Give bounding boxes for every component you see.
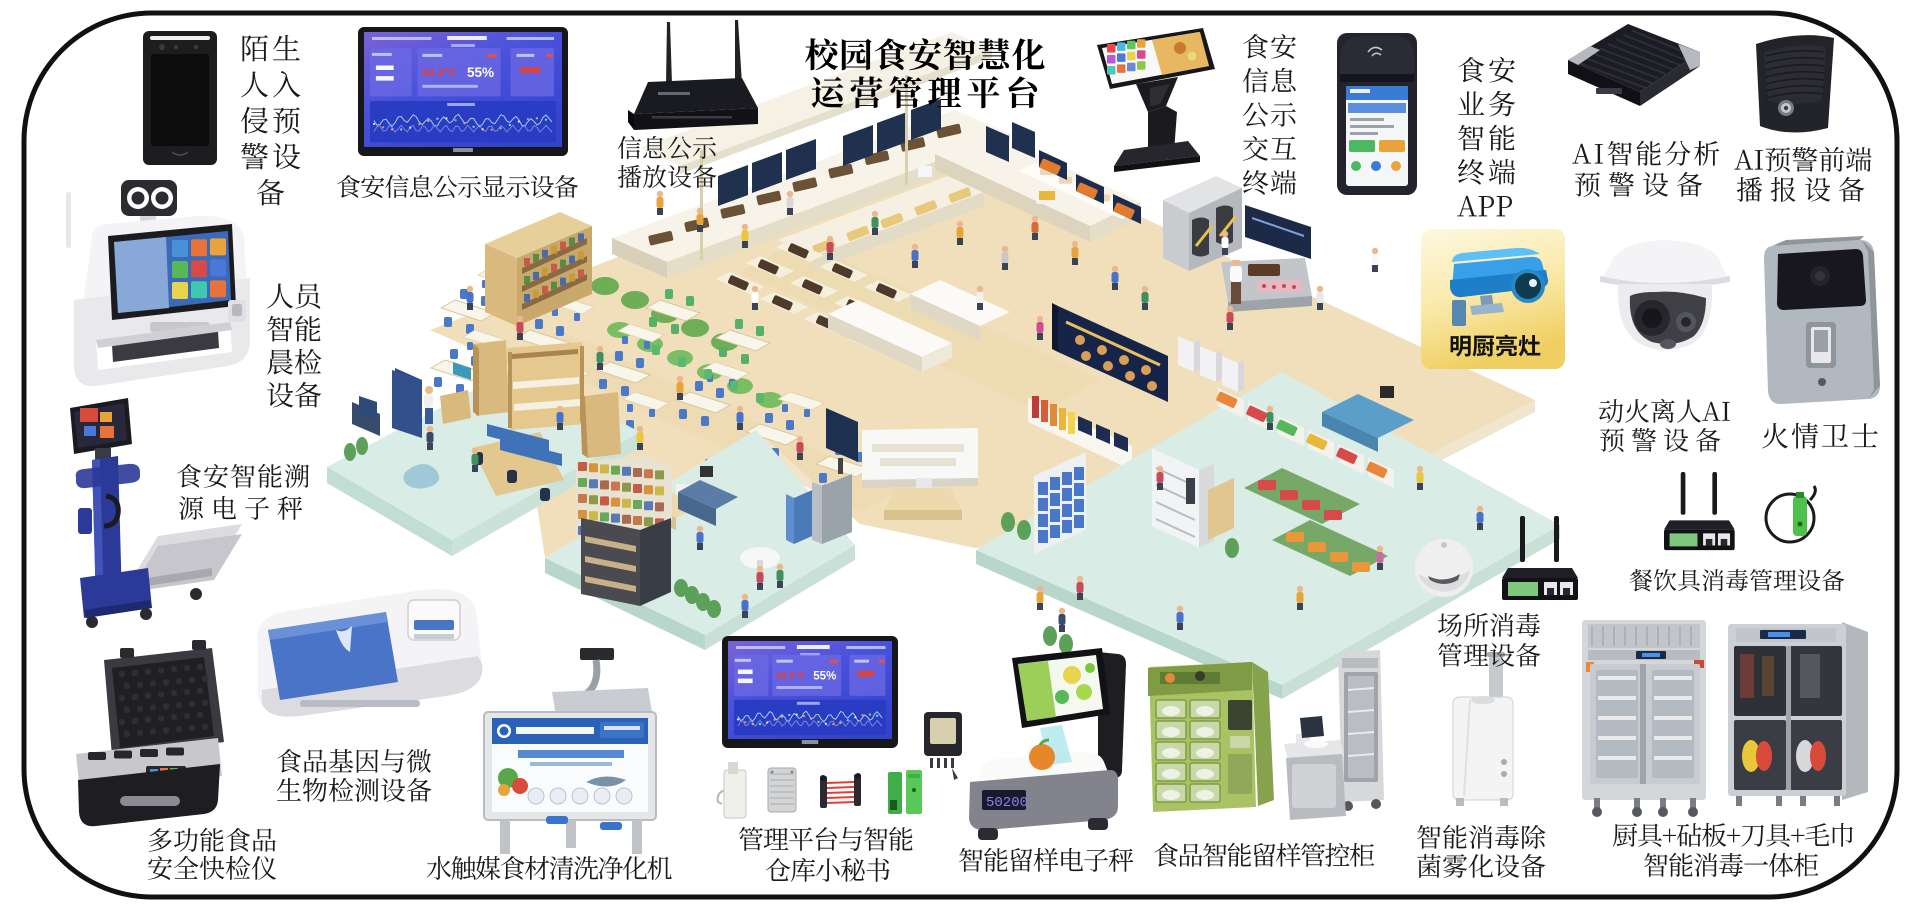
svg-text:55%: 55% [813,670,836,682]
svg-text:62.2°C: 62.2°C [422,67,456,79]
svg-text:62.2°C: 62.2°C [776,671,805,682]
svg-text:50200: 50200 [986,795,1028,811]
svg-text:55%: 55% [467,65,494,80]
